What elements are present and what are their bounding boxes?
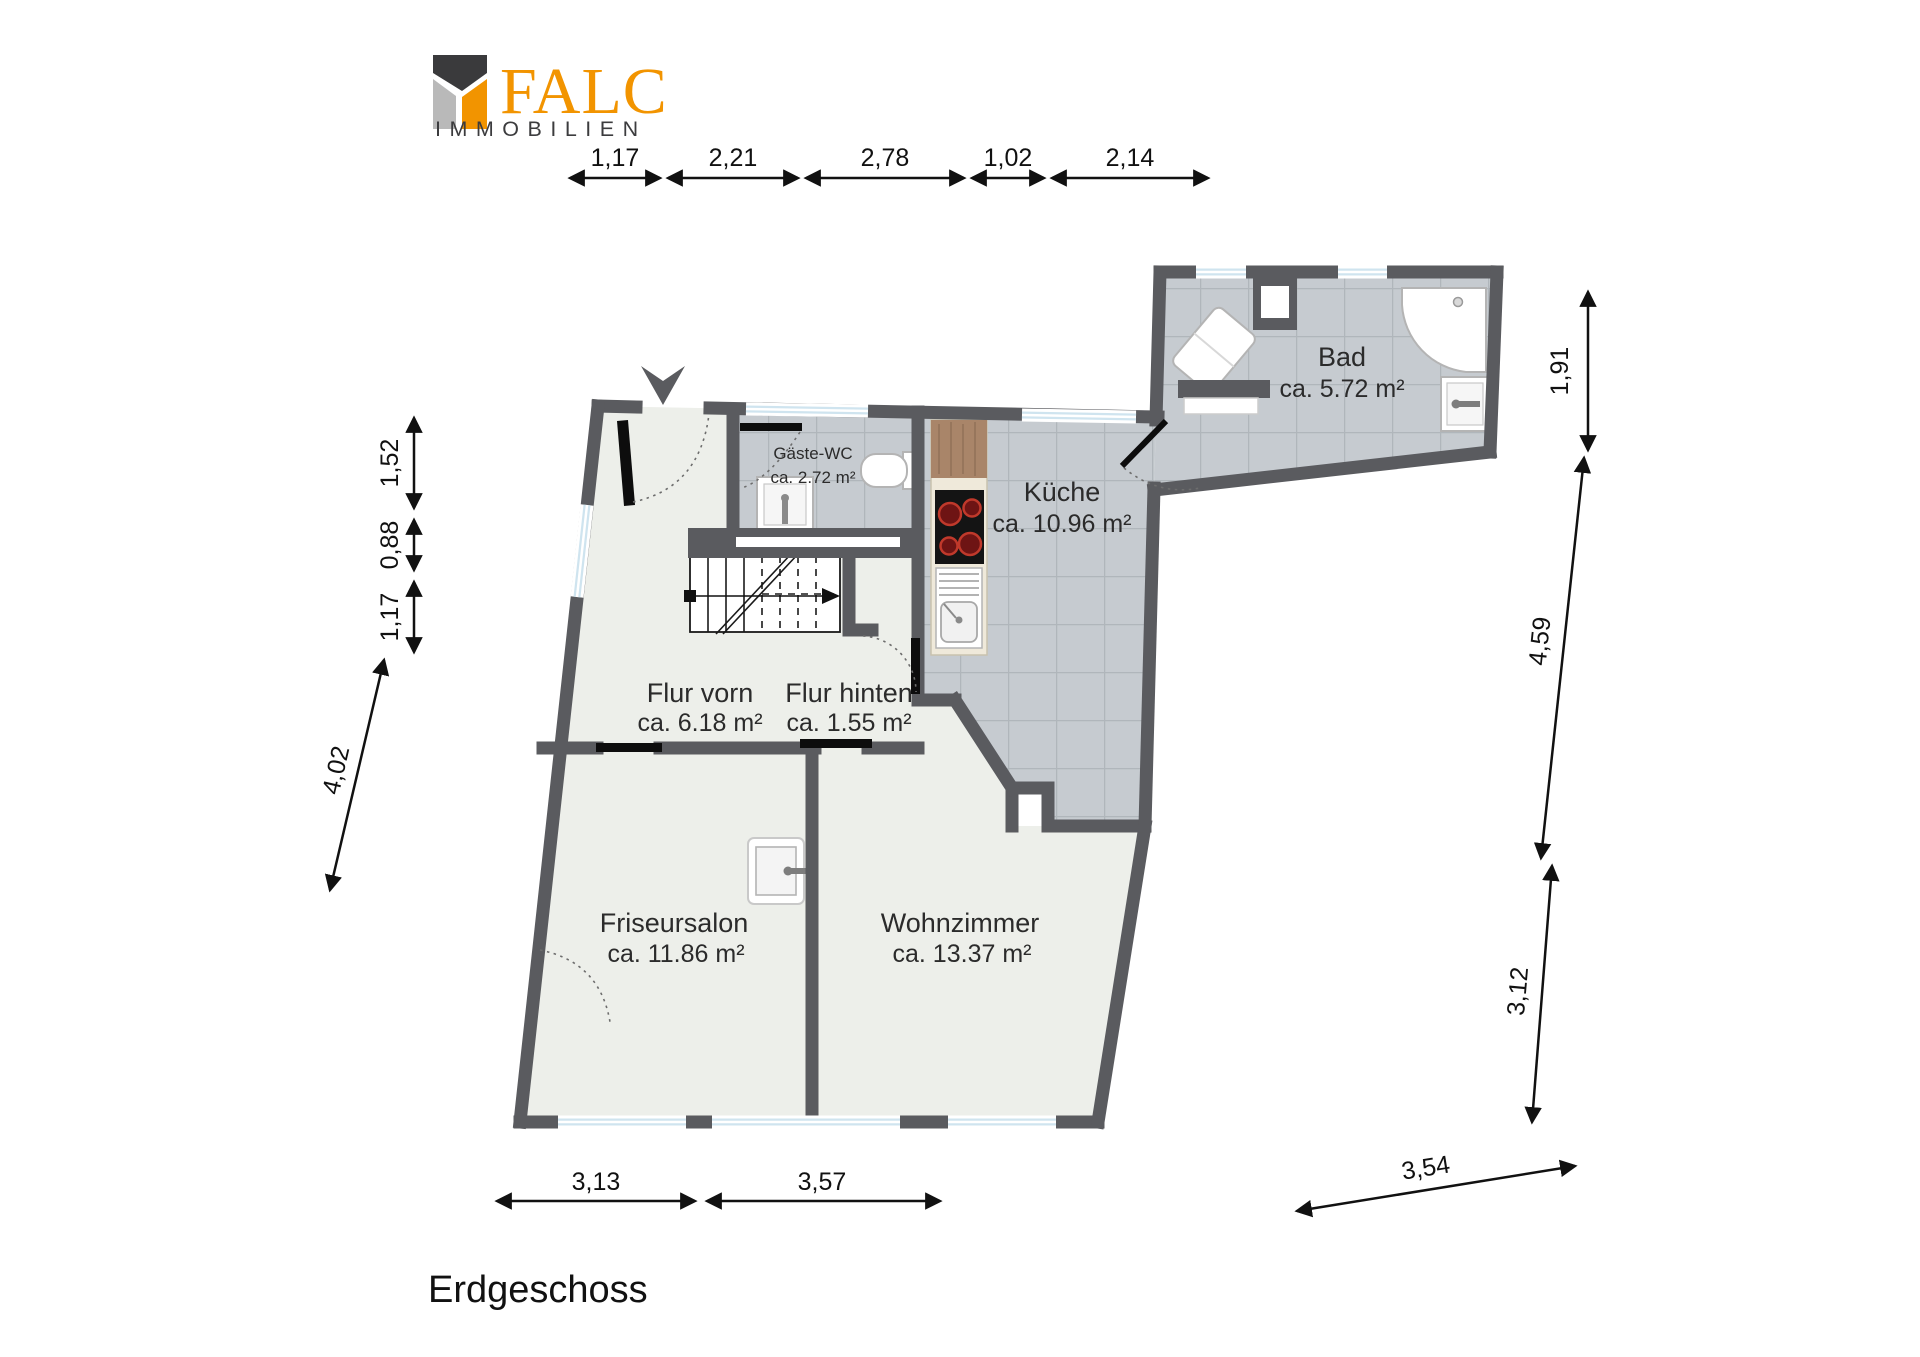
wc-door [740, 423, 802, 431]
entrance-arrow-icon [641, 366, 685, 405]
toilet-icon [861, 452, 917, 489]
room-label-friseursalon: Friseursalon [600, 908, 749, 938]
room-label-wohnzimmer: Wohnzimmer [881, 908, 1040, 938]
floor-title: Erdgeschoss [428, 1269, 648, 1311]
dim-top-1: 1,17 [591, 144, 640, 172]
salon-door-threshold [596, 743, 662, 752]
dim-left-1: 1,52 [376, 439, 404, 488]
dim-top-4: 1,02 [984, 144, 1033, 172]
dim-right-1: 1,91 [1546, 347, 1574, 396]
dim-bottom-1: 3,13 [572, 1168, 621, 1196]
room-label-kueche: Küche [1024, 477, 1101, 507]
dim-left-2: 0,88 [376, 521, 404, 570]
room-area-flur-hinten: ca. 1.55 m² [786, 709, 911, 737]
window [746, 409, 868, 411]
room-label-flur-hinten: Flur hinten [785, 678, 913, 708]
salon-sink-icon [748, 838, 812, 904]
window [1022, 415, 1136, 417]
room-label-bad: Bad [1318, 342, 1366, 372]
dim-left-4: 4,02 [317, 743, 355, 797]
room-area-kueche: ca. 10.96 m² [993, 510, 1132, 538]
dim-top-3: 2,78 [861, 144, 910, 172]
room-area-gaeste-wc: ca. 2.72 m² [770, 468, 855, 487]
room-area-bad: ca. 5.72 m² [1279, 375, 1404, 403]
bath-sink-icon [1441, 377, 1489, 431]
dim-right-3: 3,12 [1502, 966, 1534, 1017]
room-label-gaeste-wc: Gäste-WC [773, 444, 852, 463]
room-label-flur-vorn: Flur vorn [647, 678, 754, 708]
logo-subtitle-text: IMMOBILIEN [435, 117, 647, 141]
dim-right-4: 3,54 [1400, 1150, 1453, 1185]
dim-top-2: 2,21 [709, 144, 758, 172]
dim-bottom-2: 3,57 [798, 1168, 847, 1196]
floorplan-page: FALC IMMOBILIEN [0, 0, 1920, 1357]
kitchen-sink-icon [936, 568, 982, 648]
staircase [684, 554, 840, 634]
livingroom-door-threshold [800, 739, 872, 748]
bath-wall-stub [1178, 380, 1270, 398]
stove-icon [935, 490, 984, 564]
falc-logo: FALC IMMOBILIEN [433, 55, 668, 141]
kitchen-counter [931, 420, 987, 655]
floorplan-canvas: FALC IMMOBILIEN [0, 0, 1920, 1357]
dim-top-5: 2,14 [1106, 144, 1155, 172]
dim-left-3: 1,17 [376, 593, 404, 642]
dim-right-2: 4,59 [1524, 615, 1557, 666]
room-area-flur-vorn: ca. 6.18 m² [637, 709, 762, 737]
room-area-friseursalon: ca. 11.86 m² [607, 940, 744, 968]
stair-start-marker [684, 590, 696, 602]
room-area-wohnzimmer: ca. 13.37 m² [893, 940, 1032, 968]
